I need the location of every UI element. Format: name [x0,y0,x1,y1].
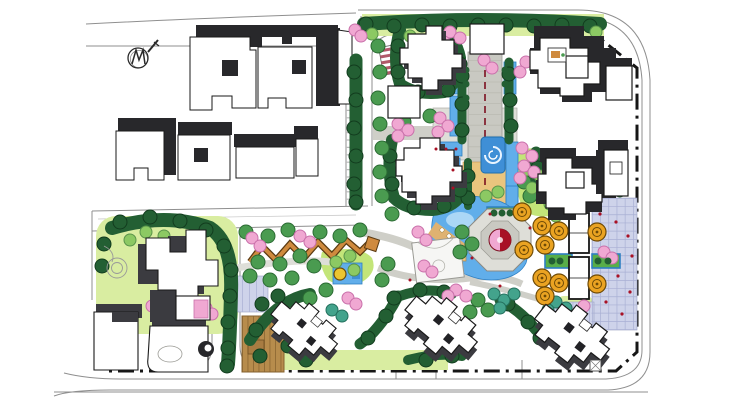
masterplan-canvas [0,0,750,404]
tower-b [530,26,632,102]
ctx-block-7 [296,139,318,176]
annex-square-top [470,24,504,54]
ctx-block-6 [236,147,294,178]
ctx-block-2 [258,47,312,108]
masterplan-drawing [0,0,750,404]
annex-square-mid [388,86,420,118]
ctx-block-4 [116,131,164,180]
spiral-fountain [481,137,505,173]
kiosk [548,48,566,62]
corner-marker [590,360,601,371]
pink-court [194,300,208,318]
tower-e [596,140,628,196]
north-arrow-icon [128,40,159,68]
west-road-upper [92,206,368,211]
top-road-upper-edge [86,13,356,24]
sports-court [412,237,465,283]
